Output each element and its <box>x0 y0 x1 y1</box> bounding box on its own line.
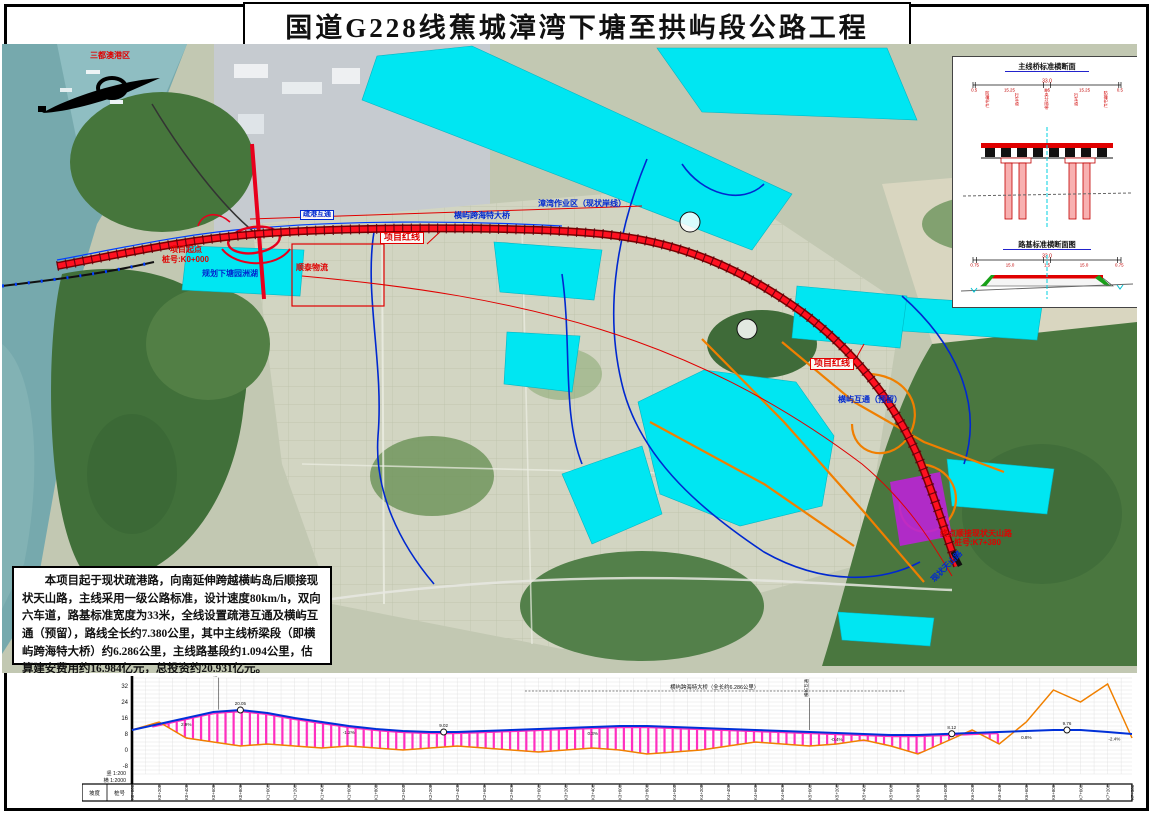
map-area: 三都澳港区项目红线项目红线项目起点桩号:K0+000规划下塘园洲湖顺泰物流漳湾作… <box>2 44 1137 673</box>
svg-text:横屿互通（预留）: 横屿互通（预留） <box>803 676 810 697</box>
svg-text:K5+200: K5+200 <box>834 784 839 800</box>
svg-text:K5+800: K5+800 <box>916 784 921 800</box>
svg-text:K6+400: K6+400 <box>997 784 1002 800</box>
svg-text:K4+600: K4+600 <box>753 784 758 800</box>
svg-text:K0+400: K0+400 <box>184 784 189 800</box>
svg-text:K5+600: K5+600 <box>889 784 894 800</box>
svg-text:0.75: 0.75 <box>970 263 979 268</box>
svg-text:K6+200: K6+200 <box>970 784 975 800</box>
svg-text:9.02: 9.02 <box>439 723 448 728</box>
svg-text:K0+200: K0+200 <box>157 784 162 800</box>
svg-text:K6+800: K6+800 <box>1051 784 1056 800</box>
svg-text:行车道: 行车道 <box>1073 91 1079 106</box>
svg-text:防撞护栏: 防撞护栏 <box>1104 89 1109 109</box>
drawing-sheet: 国道G228线蕉城漳湾下塘至拱屿段公路工程 <box>0 0 1151 813</box>
svg-text:K7+200: K7+200 <box>1105 784 1110 800</box>
svg-text:K3+000: K3+000 <box>536 784 541 800</box>
svg-text:15.25: 15.25 <box>1004 88 1016 93</box>
svg-text:8: 8 <box>125 732 129 738</box>
svg-text:K2+000: K2+000 <box>401 784 406 800</box>
svg-text:K2+400: K2+400 <box>455 784 460 800</box>
svg-text:K0+000: K0+000 <box>130 784 135 800</box>
svg-text:K0+600: K0+600 <box>211 784 216 800</box>
svg-text:K7+380: K7+380 <box>1130 784 1135 800</box>
svg-text:K4+800: K4+800 <box>780 784 785 800</box>
description-text: 本项目起于现状疏港路，向南延伸跨越横屿岛后顺接现状天山路，主线采用一级公路标准，… <box>22 573 322 673</box>
svg-text:0.8%: 0.8% <box>1021 735 1031 740</box>
svg-text:K3+200: K3+200 <box>563 784 568 800</box>
svg-text:K1+800: K1+800 <box>374 784 379 800</box>
svg-text:K6+600: K6+600 <box>1024 784 1029 800</box>
svg-text:竖 1:200: 竖 1:200 <box>106 769 126 777</box>
svg-text:K2+600: K2+600 <box>482 784 487 800</box>
svg-text:K0+800: K0+800 <box>238 784 243 800</box>
page-title: 国道G228线蕉城漳湾下塘至拱屿段公路工程 <box>285 6 869 45</box>
svg-text:K7+000: K7+000 <box>1078 784 1083 800</box>
svg-text:24: 24 <box>121 700 128 706</box>
svg-text:0: 0 <box>125 748 129 754</box>
svg-text:15.25: 15.25 <box>1079 88 1091 93</box>
svg-text:K3+800: K3+800 <box>645 784 650 800</box>
svg-text:K4+200: K4+200 <box>699 784 704 800</box>
svg-text:33.0: 33.0 <box>1042 79 1052 85</box>
cross-section-panel: 主线桥标准横断面0.515.251.515.250.533.0防撞护栏行车道中央… <box>952 56 1137 308</box>
svg-text:-0.4%: -0.4% <box>831 737 843 742</box>
svg-text:K1+400: K1+400 <box>320 784 325 800</box>
svg-text:0.5: 0.5 <box>1117 88 1124 93</box>
svg-text:K1+600: K1+600 <box>347 784 352 800</box>
svg-text:坡度: 坡度 <box>89 789 101 797</box>
svg-text:桩号: 桩号 <box>114 789 126 797</box>
svg-text:15.0: 15.0 <box>1080 263 1089 268</box>
svg-text:疏港互通: 疏港互通 <box>212 676 219 677</box>
svg-text:16: 16 <box>121 716 128 722</box>
svg-text:K2+200: K2+200 <box>428 784 433 800</box>
svg-text:9.76: 9.76 <box>1063 721 1072 726</box>
svg-text:横 1:2000: 横 1:2000 <box>104 776 127 784</box>
svg-text:K4+400: K4+400 <box>726 784 731 800</box>
svg-text:K1+200: K1+200 <box>292 784 297 800</box>
profile-chart: 32241680-8竖 1:200横 1:200020.059.028.129.… <box>82 676 1140 804</box>
svg-text:32: 32 <box>121 684 128 690</box>
svg-text:K6+000: K6+000 <box>943 784 948 800</box>
svg-text:20.05: 20.05 <box>235 701 247 706</box>
svg-text:防撞护栏: 防撞护栏 <box>985 89 990 109</box>
svg-text:K1+000: K1+000 <box>265 784 270 800</box>
svg-text:15.0: 15.0 <box>1006 263 1015 268</box>
svg-text:-8: -8 <box>123 764 129 770</box>
svg-text:中央分隔带: 中央分隔带 <box>1044 87 1050 111</box>
svg-text:8.12: 8.12 <box>947 725 956 730</box>
svg-text:0.5: 0.5 <box>971 88 978 93</box>
svg-text:2.9%: 2.9% <box>181 722 191 727</box>
svg-text:K5+400: K5+400 <box>862 784 867 800</box>
svg-text:K3+600: K3+600 <box>618 784 623 800</box>
svg-text:0.75: 0.75 <box>1115 263 1124 268</box>
svg-text:K3+400: K3+400 <box>591 784 596 800</box>
project-description: 本项目起于现状疏港路，向南延伸跨越横屿岛后顺接现状天山路，主线采用一级公路标准，… <box>12 566 332 665</box>
svg-text:K5+000: K5+000 <box>807 784 812 800</box>
svg-text:K2+800: K2+800 <box>509 784 514 800</box>
profile-svg: 32241680-8竖 1:200横 1:200020.059.028.129.… <box>82 676 1140 804</box>
svg-text:主线桥标准横断面: 主线桥标准横断面 <box>1018 62 1076 71</box>
svg-text:K4+000: K4+000 <box>672 784 677 800</box>
svg-text:路基标准横断面图: 路基标准横断面图 <box>1018 240 1076 249</box>
svg-text:横屿跨海特大桥（全长约6.286公里）: 横屿跨海特大桥（全长约6.286公里） <box>670 683 759 691</box>
svg-text:-1.2%: -1.2% <box>343 730 355 735</box>
xsec-svg: 主线桥标准横断面0.515.251.515.250.533.0防撞护栏行车道中央… <box>953 57 1137 305</box>
svg-text:-2.4%: -2.4% <box>1108 737 1120 742</box>
title-bar: 国道G228线蕉城漳湾下塘至拱屿段公路工程 <box>243 2 911 48</box>
svg-text:行车道: 行车道 <box>1014 91 1020 106</box>
svg-text:0.3%: 0.3% <box>587 731 597 736</box>
